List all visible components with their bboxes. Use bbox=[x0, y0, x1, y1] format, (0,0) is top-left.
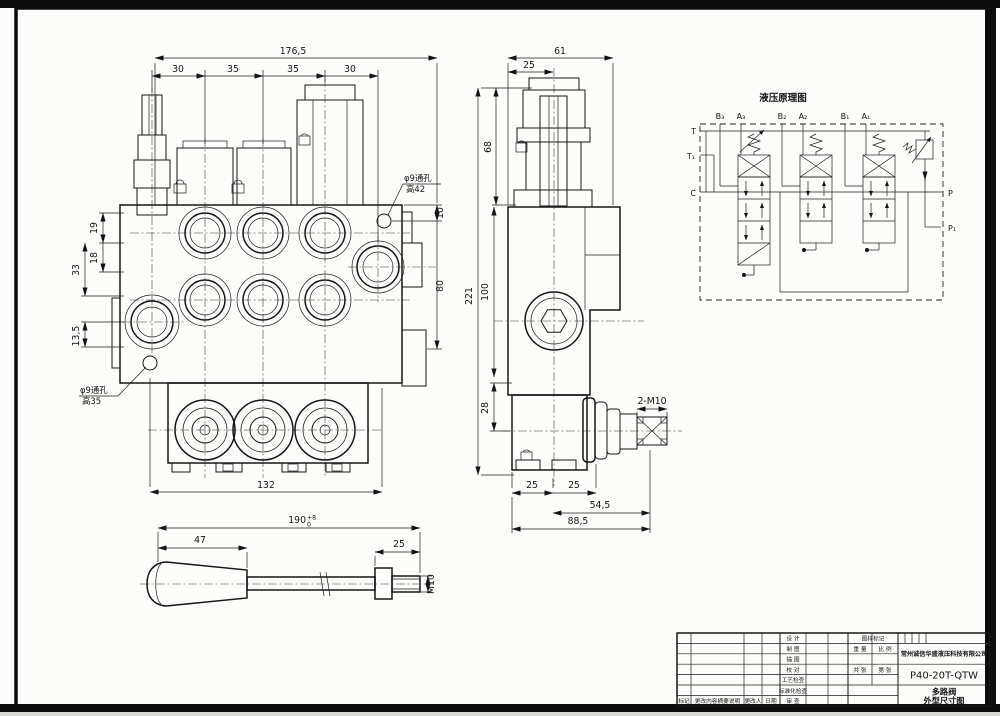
tb-sheets: 共 张 bbox=[853, 666, 866, 674]
dim-lever-m10: M10 bbox=[426, 574, 437, 594]
dim-side-25b: 25 bbox=[568, 480, 580, 491]
port-b2: B₂ bbox=[778, 112, 787, 121]
tb-draft: 制 图 bbox=[786, 645, 799, 653]
dim-side-88-5: 88,5 bbox=[568, 516, 589, 527]
port-t: T bbox=[690, 127, 696, 136]
port-c: C bbox=[690, 189, 696, 198]
valve-section-2 bbox=[782, 124, 832, 252]
valve-section-1 bbox=[845, 124, 895, 252]
engineering-drawing: 176,5 30 35 35 30 19 18 33 13,5 bbox=[0, 0, 1000, 716]
dim-side-28: 28 bbox=[480, 402, 491, 414]
dim-seg3: 35 bbox=[287, 64, 299, 75]
tb-check: 校 对 bbox=[786, 666, 799, 674]
dim-side-68: 68 bbox=[483, 141, 494, 153]
valve-section-3 bbox=[720, 124, 770, 277]
tb-page: 第 张 bbox=[878, 666, 891, 674]
front-ports bbox=[125, 207, 404, 370]
relief-valve-symbol bbox=[903, 131, 941, 227]
tb-mark: 标记 bbox=[678, 697, 690, 705]
dim-seg1: 30 bbox=[172, 64, 184, 75]
tb-scale: 比 例 bbox=[878, 645, 891, 653]
tb-design: 设 计 bbox=[786, 635, 799, 643]
dim-side-25top: 25 bbox=[523, 60, 535, 71]
port-t1: T₁ bbox=[686, 152, 695, 161]
dim-bottom-132: 132 bbox=[257, 480, 275, 491]
port-b3: B₃ bbox=[716, 112, 725, 121]
port-b1: B₁ bbox=[841, 112, 850, 121]
dim-left-18: 18 bbox=[89, 252, 100, 264]
tb-draw-mark: 图样标记 bbox=[862, 635, 885, 643]
dim-lever-190: 190 bbox=[288, 515, 306, 526]
port-p1: P₁ bbox=[948, 224, 956, 233]
tb-date: 日期 bbox=[765, 698, 777, 705]
dim-seg2: 35 bbox=[227, 64, 239, 75]
drawing-sheet: 176,5 30 35 35 30 19 18 33 13,5 bbox=[0, 0, 1000, 716]
dim-side-54-5: 54,5 bbox=[590, 500, 611, 511]
port-a3: A₃ bbox=[737, 112, 746, 121]
port-a1: A₁ bbox=[862, 112, 871, 121]
side-view: 61 25 68 221 100 28 25 25 54,5 88,5 bbox=[464, 46, 682, 533]
tb-weight: 重 量 bbox=[853, 645, 866, 653]
front-view: 176,5 30 35 35 30 19 18 33 13,5 bbox=[71, 46, 446, 492]
dim-joint-2-m10: 2-M10 bbox=[637, 396, 666, 407]
lever-dimensions: 190 +8 0 47 25 M10 bbox=[158, 515, 437, 594]
dim-side-25a: 25 bbox=[526, 480, 538, 491]
tb-review: 审 查 bbox=[786, 697, 799, 705]
dim-total-width: 176,5 bbox=[280, 46, 307, 57]
dim-right-80: 80 bbox=[435, 280, 446, 292]
dim-lever-25: 25 bbox=[393, 539, 405, 550]
scan-shadow bbox=[0, 712, 1000, 716]
note-hole-bottom-line2: 高35 bbox=[82, 396, 101, 406]
tb-process-check: 工艺检查 bbox=[782, 676, 805, 684]
lever-view: 190 +8 0 47 25 M10 bbox=[140, 515, 437, 607]
tb-change-desc: 更改内容摘要说明 bbox=[695, 697, 741, 705]
port-a2: A₂ bbox=[799, 112, 808, 121]
note-hole-top-line2: 高42 bbox=[406, 184, 425, 194]
hydraulic-schematic: 液压原理图 bbox=[686, 92, 956, 300]
tb-company: 常州诚信华盛液压科技有限公司 bbox=[901, 650, 988, 658]
dim-seg4: 30 bbox=[344, 64, 356, 75]
dim-side-100: 100 bbox=[480, 283, 491, 301]
front-dimensions: 176,5 30 35 35 30 19 18 33 13,5 bbox=[71, 46, 446, 492]
note-hole-bottom-line1: φ9通孔 bbox=[80, 385, 108, 395]
dim-side-221: 221 bbox=[464, 287, 475, 305]
tb-standard-check: 标准化检查 bbox=[779, 687, 808, 695]
dim-lever-47: 47 bbox=[194, 535, 206, 546]
tb-trace: 描 图 bbox=[786, 655, 799, 663]
schematic-title: 液压原理图 bbox=[759, 92, 807, 104]
dim-side-61: 61 bbox=[554, 46, 566, 57]
note-hole-top-line1: φ9通孔 bbox=[404, 173, 432, 183]
tb-changer: 更改人 bbox=[744, 697, 761, 705]
dim-left-33: 33 bbox=[71, 264, 82, 276]
port-p: P bbox=[948, 189, 953, 198]
dim-left-19: 19 bbox=[89, 222, 100, 234]
dim-lever-tol-upper: +8 bbox=[307, 515, 316, 522]
hole-top-right bbox=[377, 214, 391, 228]
dim-left-13-5: 13,5 bbox=[71, 326, 82, 347]
title-block: 设 计 制 图 描 图 校 对 工艺检查 标准化检查 审 查 标记 更改内容摘要… bbox=[677, 633, 990, 706]
tb-model: P40-20T-QTW bbox=[910, 671, 978, 682]
tb-drawing-type: 外型尺寸图 bbox=[923, 696, 965, 706]
dim-right-10: 10 bbox=[435, 207, 446, 219]
dim-lever-tol-lower: 0 bbox=[307, 522, 311, 529]
